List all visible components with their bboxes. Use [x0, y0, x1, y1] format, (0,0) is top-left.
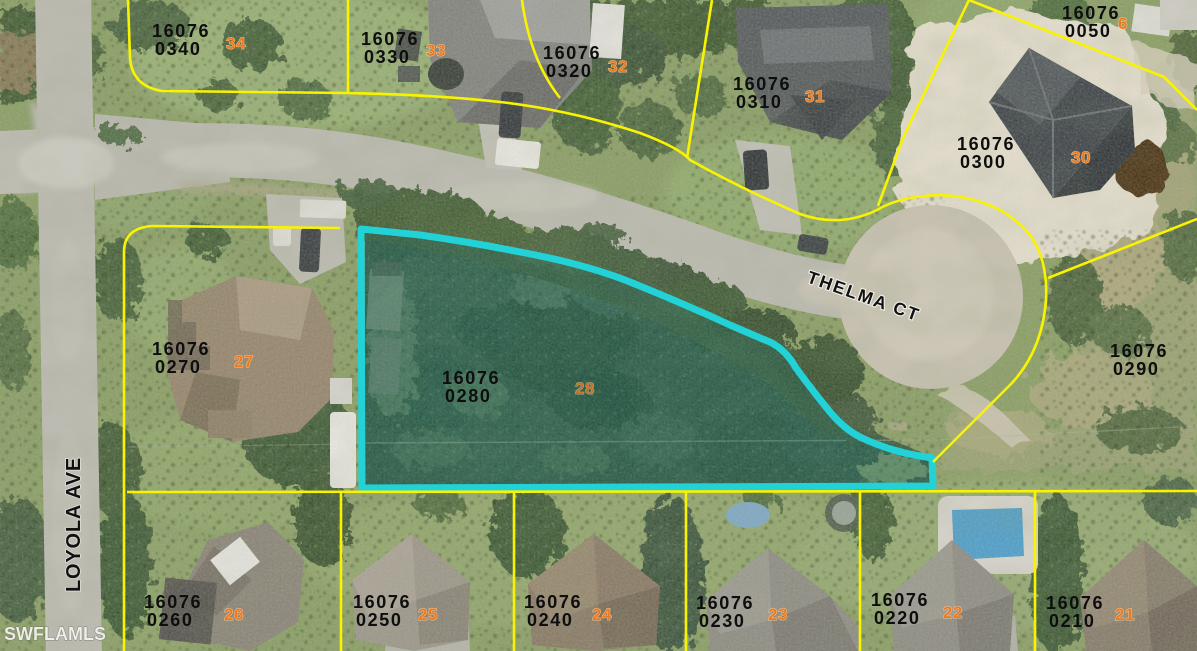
svg-text:16076: 16076: [1046, 593, 1104, 613]
svg-text:6: 6: [1118, 14, 1128, 33]
svg-text:16076: 16076: [442, 368, 500, 388]
svg-text:24: 24: [592, 605, 612, 624]
svg-text:33: 33: [426, 41, 446, 60]
svg-text:22: 22: [943, 603, 963, 622]
svg-text:16076: 16076: [696, 593, 754, 613]
svg-text:0250: 0250: [356, 610, 402, 630]
svg-text:0210: 0210: [1049, 611, 1095, 631]
svg-text:16076: 16076: [957, 134, 1015, 154]
svg-text:26: 26: [224, 605, 244, 624]
svg-text:0280: 0280: [445, 386, 491, 406]
svg-text:16076: 16076: [733, 74, 791, 94]
svg-text:0310: 0310: [736, 92, 782, 112]
svg-text:21: 21: [1115, 605, 1135, 624]
svg-text:16076: 16076: [144, 592, 202, 612]
svg-text:16076: 16076: [152, 339, 210, 359]
svg-text:34: 34: [226, 34, 246, 53]
svg-text:0300: 0300: [960, 152, 1006, 172]
svg-text:16076: 16076: [353, 592, 411, 612]
svg-text:SWFLAMLS: SWFLAMLS: [4, 624, 106, 644]
svg-text:16076: 16076: [361, 29, 419, 49]
svg-text:0220: 0220: [874, 608, 920, 628]
svg-text:30: 30: [1071, 148, 1091, 167]
svg-text:32: 32: [608, 57, 628, 76]
svg-text:0330: 0330: [364, 47, 410, 67]
svg-text:16076: 16076: [543, 43, 601, 63]
svg-text:0260: 0260: [147, 610, 193, 630]
svg-text:16076: 16076: [152, 21, 210, 41]
svg-text:16076: 16076: [1110, 341, 1168, 361]
svg-text:25: 25: [418, 605, 438, 624]
svg-text:16076: 16076: [1062, 3, 1120, 23]
svg-text:0290: 0290: [1113, 359, 1159, 379]
svg-text:LOYOLA AVE: LOYOLA AVE: [63, 457, 85, 592]
svg-text:0050: 0050: [1065, 21, 1111, 41]
svg-text:0270: 0270: [155, 357, 201, 377]
svg-text:0340: 0340: [155, 39, 201, 59]
svg-text:27: 27: [234, 352, 254, 371]
svg-text:23: 23: [768, 605, 788, 624]
svg-text:0240: 0240: [527, 610, 573, 630]
svg-text:0320: 0320: [546, 61, 592, 81]
svg-text:31: 31: [805, 87, 825, 106]
svg-text:16076: 16076: [524, 592, 582, 612]
svg-text:16076: 16076: [871, 590, 929, 610]
svg-text:28: 28: [575, 379, 595, 398]
svg-text:0230: 0230: [699, 611, 745, 631]
